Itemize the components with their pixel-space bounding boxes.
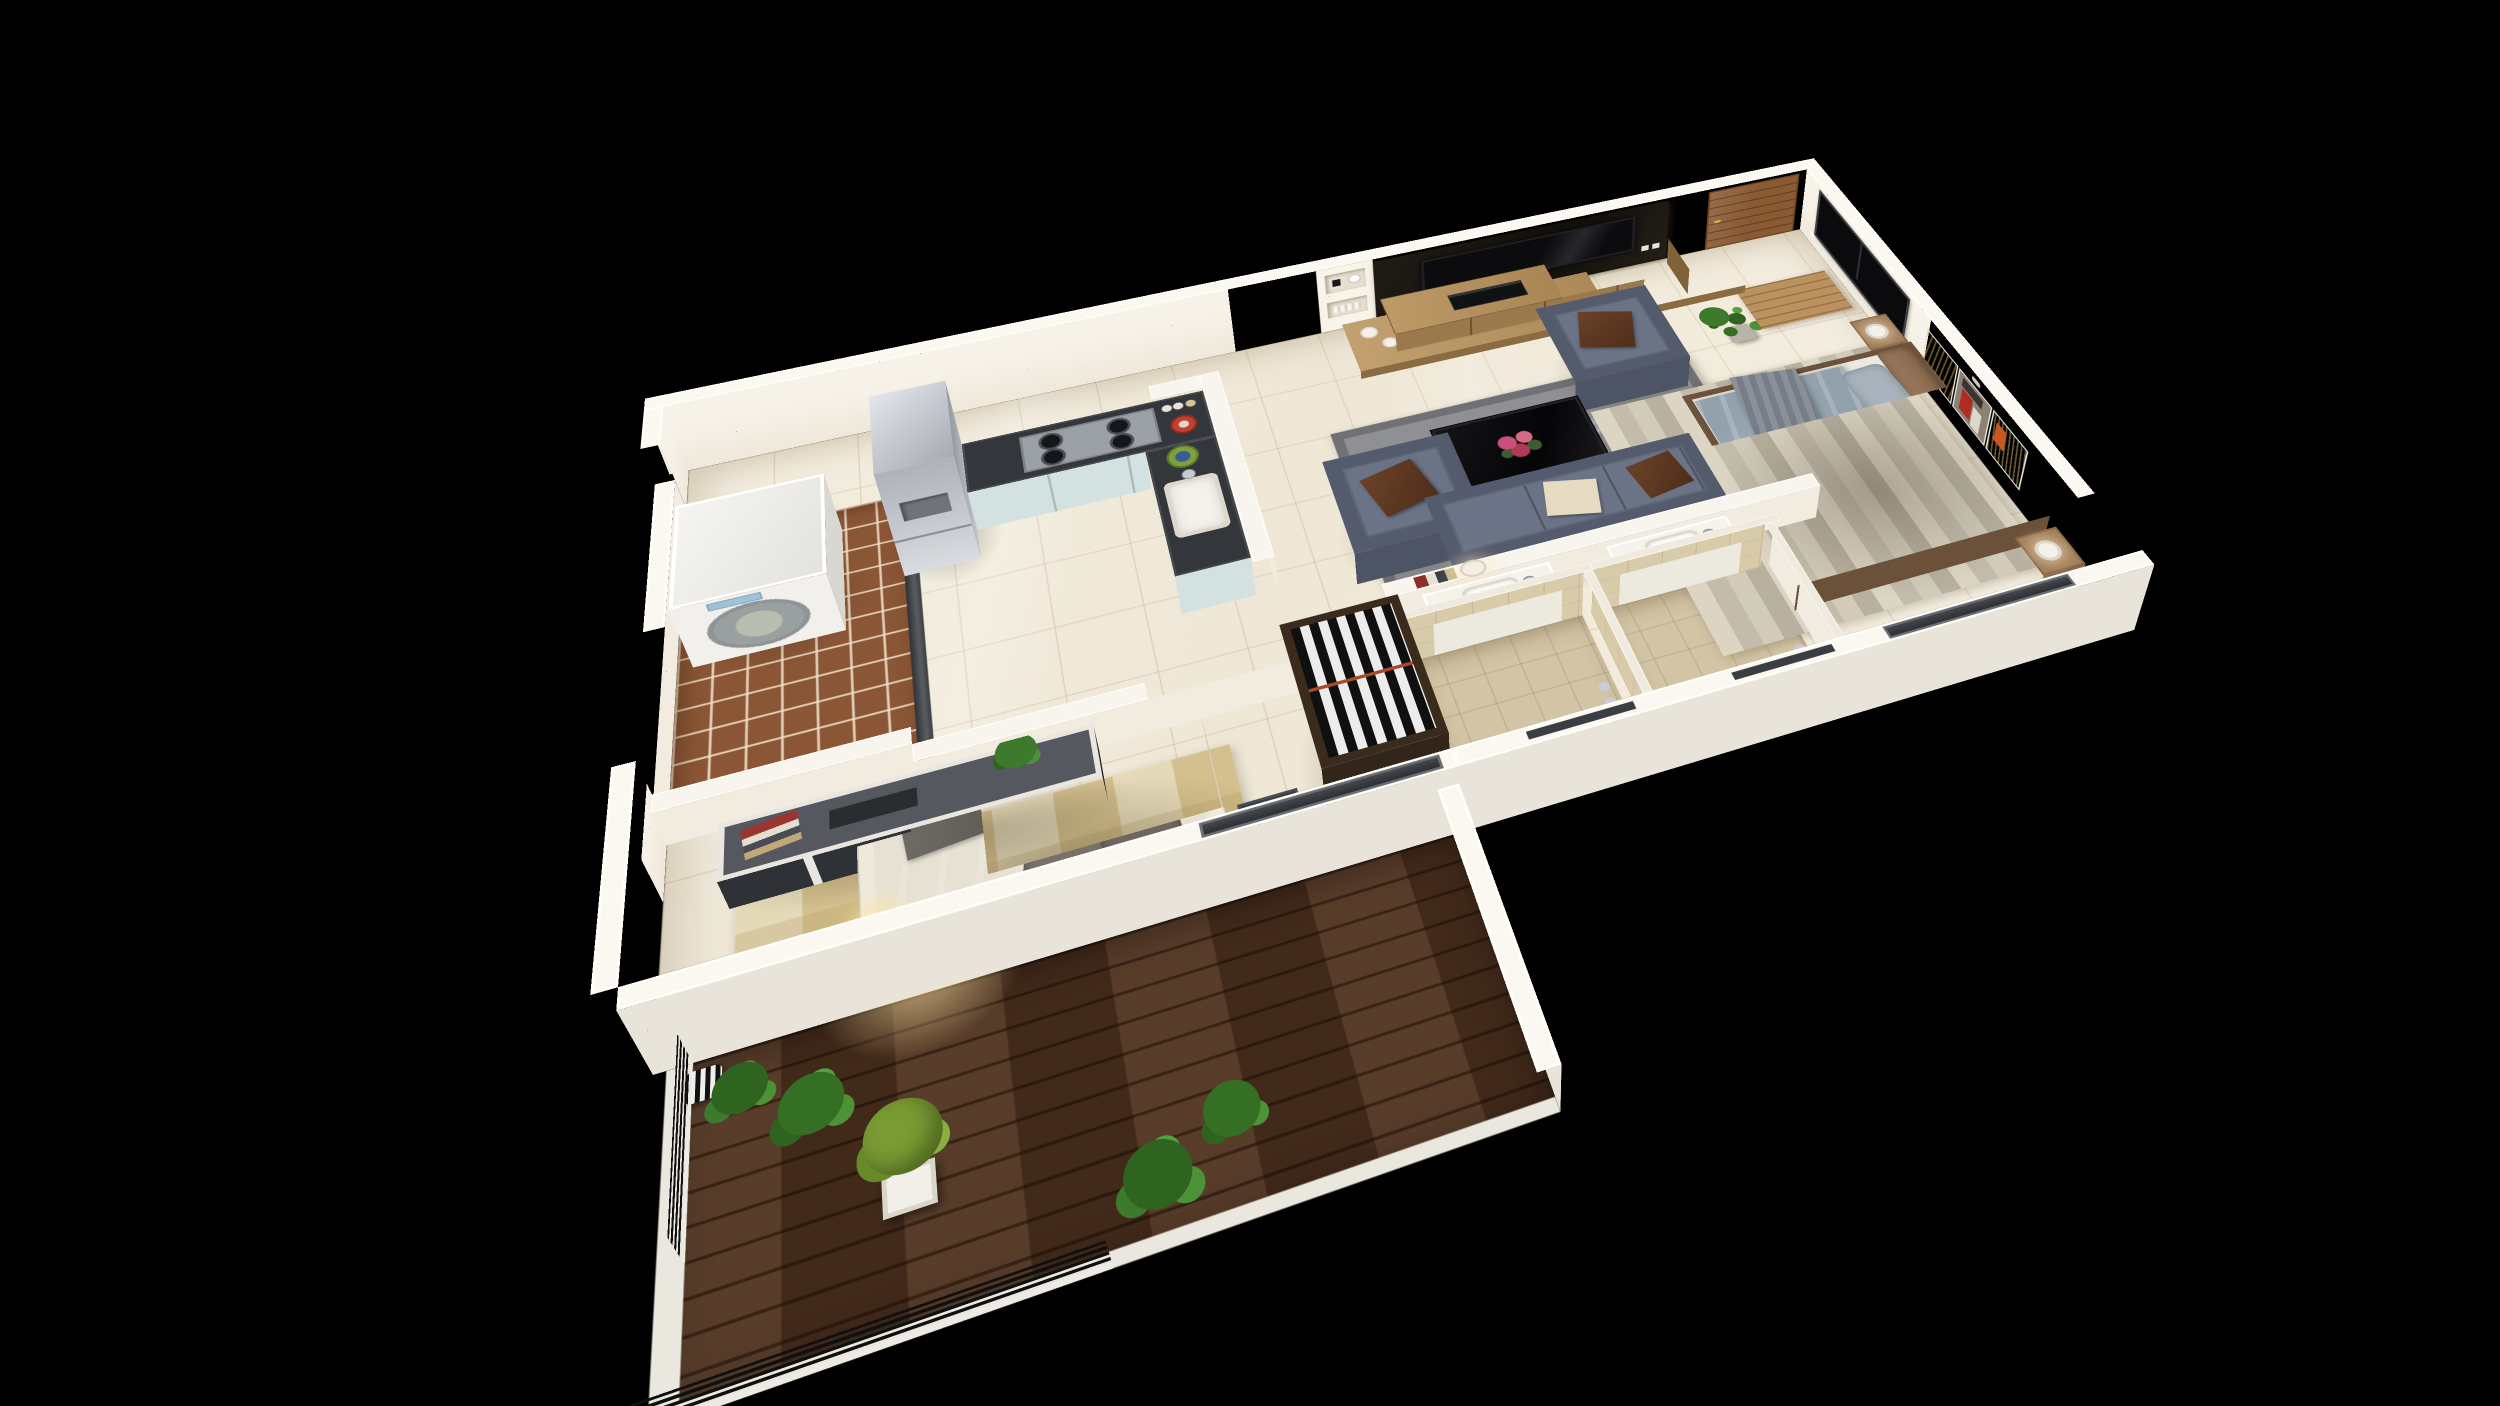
fridge-handle-recess xyxy=(899,492,952,521)
lamp-a xyxy=(1861,322,1892,341)
shelf-niche-lower xyxy=(1327,295,1368,319)
armchair-a-pillow-brown xyxy=(1578,311,1636,347)
door-handle xyxy=(1714,220,1721,224)
apartment-floor-plan xyxy=(598,218,2320,1406)
spice-jars xyxy=(1160,396,1201,415)
fridge-door-split xyxy=(894,523,972,543)
sofa-pillow-cream xyxy=(1543,479,1602,516)
lamp-b xyxy=(2029,538,2067,563)
wardrobe-hanger-rail xyxy=(1308,661,1413,692)
kitchen-sink xyxy=(1163,472,1232,539)
window-pane-divider xyxy=(1856,242,1863,280)
shelf-niche-upper xyxy=(1325,268,1367,295)
niche-glasses xyxy=(1333,301,1361,313)
zebra-photo-frame xyxy=(1557,261,1600,289)
niche-wall-clock xyxy=(1347,272,1362,284)
media-cabinet-magazines xyxy=(740,810,802,861)
red-bowl xyxy=(1171,414,1198,434)
media-player xyxy=(1448,281,1527,310)
white-figurine xyxy=(1606,255,1631,275)
media-cabinet-player xyxy=(829,785,918,830)
niche-photo-frame xyxy=(1329,276,1344,289)
green-bowl-stack xyxy=(1167,444,1199,469)
render-canvas xyxy=(0,0,2500,1406)
